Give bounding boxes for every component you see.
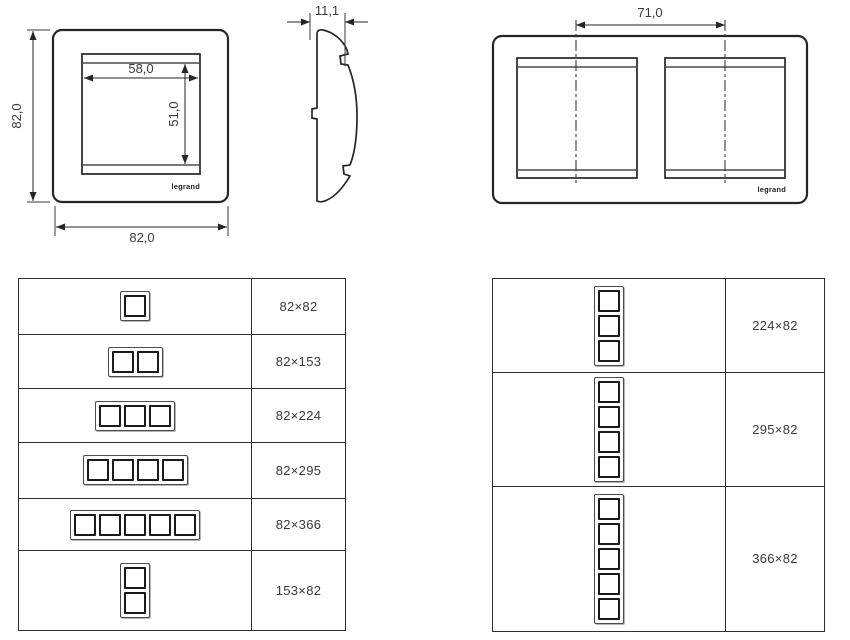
size-label: 82×295 (252, 443, 345, 498)
side-profile-view: 11,1 (287, 3, 368, 202)
plate-window (598, 381, 620, 403)
table-row: 82×295 (19, 443, 345, 499)
plate-window (598, 290, 620, 312)
dim-centers-distance: 71,0 (637, 5, 662, 20)
plate-window (598, 431, 620, 453)
table-row: 295×82 (493, 373, 824, 486)
size-label: 224×82 (726, 279, 824, 372)
plate-window (598, 406, 620, 428)
table-row: 82×153 (19, 335, 345, 390)
plate-window (112, 351, 134, 373)
plate-window (112, 459, 134, 481)
plate-window (137, 459, 159, 481)
dimension-drawings: 58,0 51,0 82,0 82,0 legrand 11,1 71,0 (0, 0, 850, 262)
dim-frame-width: 82,0 (129, 230, 154, 245)
dim-profile-thickness: 11,1 (315, 3, 339, 18)
size-label: 153×82 (252, 551, 345, 630)
plate-window (149, 514, 171, 536)
plate-window (137, 351, 159, 373)
plate-window (124, 592, 146, 614)
window-opening-left (517, 58, 637, 178)
size-table-horizontal: 82×82 82×153 82×224 82×295 82×366 153×82 (18, 278, 346, 631)
brand-logo: legrand (758, 185, 787, 194)
plate-icon-3gang (95, 401, 175, 431)
single-frame-front-view: 58,0 51,0 82,0 82,0 legrand (9, 30, 228, 245)
dim-window-height: 51,0 (166, 101, 181, 126)
plate-icon-3gang-vertical (594, 286, 624, 366)
plate-window (598, 456, 620, 478)
size-label: 82×153 (252, 335, 345, 389)
plate-window (124, 405, 146, 427)
plate-icon-1gang (120, 291, 150, 321)
dim-frame-height: 82,0 (9, 103, 24, 128)
technical-drawing-page: { "page": { "background": "#ffffff", "li… (0, 0, 850, 640)
dim-window-width: 58,0 (128, 61, 153, 76)
plate-window (124, 295, 146, 317)
plate-window (87, 459, 109, 481)
table-row: 366×82 (493, 487, 824, 631)
table-row: 153×82 (19, 551, 345, 630)
plate-window (598, 548, 620, 570)
plate-icon-5gang-vertical (594, 494, 624, 624)
plate-window (598, 315, 620, 337)
plate-window (598, 523, 620, 545)
table-row: 82×82 (19, 279, 345, 335)
size-label: 82×82 (252, 279, 345, 334)
size-label: 295×82 (726, 373, 824, 485)
plate-window (149, 405, 171, 427)
plate-window (598, 573, 620, 595)
double-frame-front-view: 71,0 legrand (493, 5, 807, 203)
plate-window (162, 459, 184, 481)
brand-logo: legrand (172, 182, 201, 191)
size-label: 82×366 (252, 499, 345, 551)
plate-window (598, 340, 620, 362)
plate-icon-4gang (83, 455, 188, 485)
table-row: 82×366 (19, 499, 345, 552)
plate-window (74, 514, 96, 536)
plate-icon-2gang (108, 347, 163, 377)
size-label: 366×82 (726, 487, 824, 631)
plate-window (598, 498, 620, 520)
table-row: 82×224 (19, 389, 345, 443)
plate-window (99, 405, 121, 427)
plate-icon-2gang-vertical (120, 563, 150, 618)
size-label: 82×224 (252, 389, 345, 442)
size-table-vertical: 224×82 295×82 366×82 (492, 278, 825, 632)
plate-window (124, 567, 146, 589)
plate-window (99, 514, 121, 536)
profile-outline (312, 30, 357, 202)
table-row: 224×82 (493, 279, 824, 373)
plate-icon-5gang (70, 510, 200, 540)
plate-icon-4gang-vertical (594, 377, 624, 482)
plate-window (174, 514, 196, 536)
plate-window (124, 514, 146, 536)
outer-frame (53, 30, 228, 202)
plate-window (598, 598, 620, 620)
